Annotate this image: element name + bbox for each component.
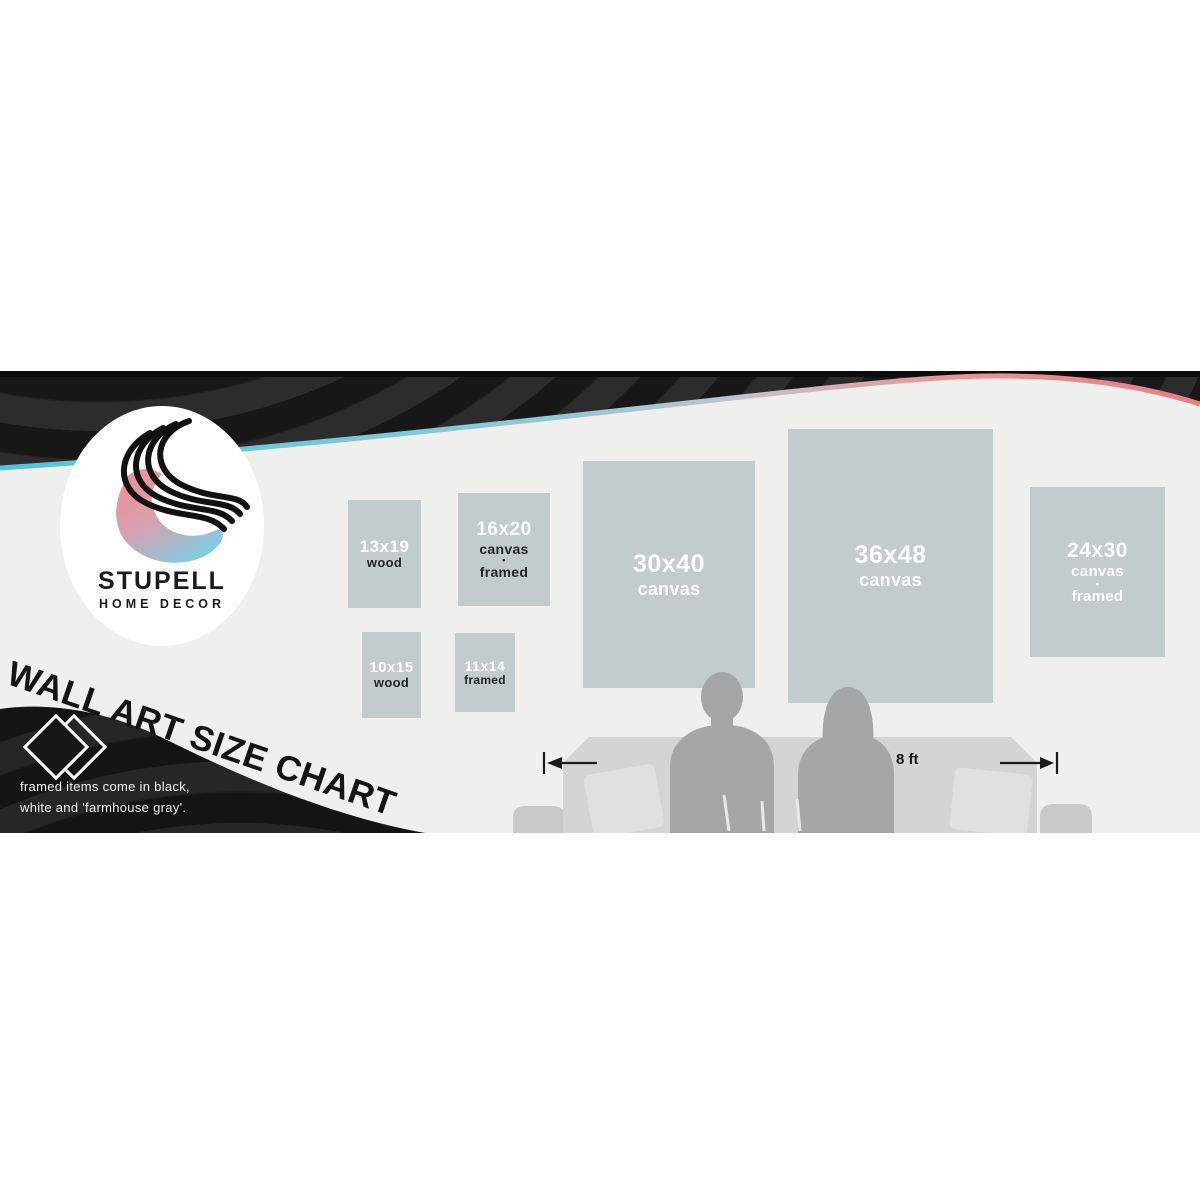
product-image-page: 13x19 wood 16x20 canvas • framed 10x15 w… bbox=[0, 0, 1200, 1200]
right-pillow bbox=[949, 767, 1033, 833]
right-side-table bbox=[1040, 804, 1092, 833]
left-pillow bbox=[583, 763, 665, 833]
brand-name: STUPELL bbox=[62, 567, 262, 596]
brand-subtitle: HOME DECOR bbox=[62, 597, 262, 611]
woman-body bbox=[798, 733, 894, 833]
scale-label: 8 ft bbox=[896, 751, 919, 768]
left-side-table bbox=[513, 806, 565, 833]
caption-line-2: white and 'farmhouse gray'. bbox=[20, 797, 190, 818]
framed-colors-caption: framed items come in black, white and 'f… bbox=[20, 776, 190, 818]
size-chart-banner: 13x19 wood 16x20 canvas • framed 10x15 w… bbox=[0, 371, 1200, 833]
man-body bbox=[670, 725, 774, 833]
caption-line-1: framed items come in black, bbox=[20, 776, 190, 797]
